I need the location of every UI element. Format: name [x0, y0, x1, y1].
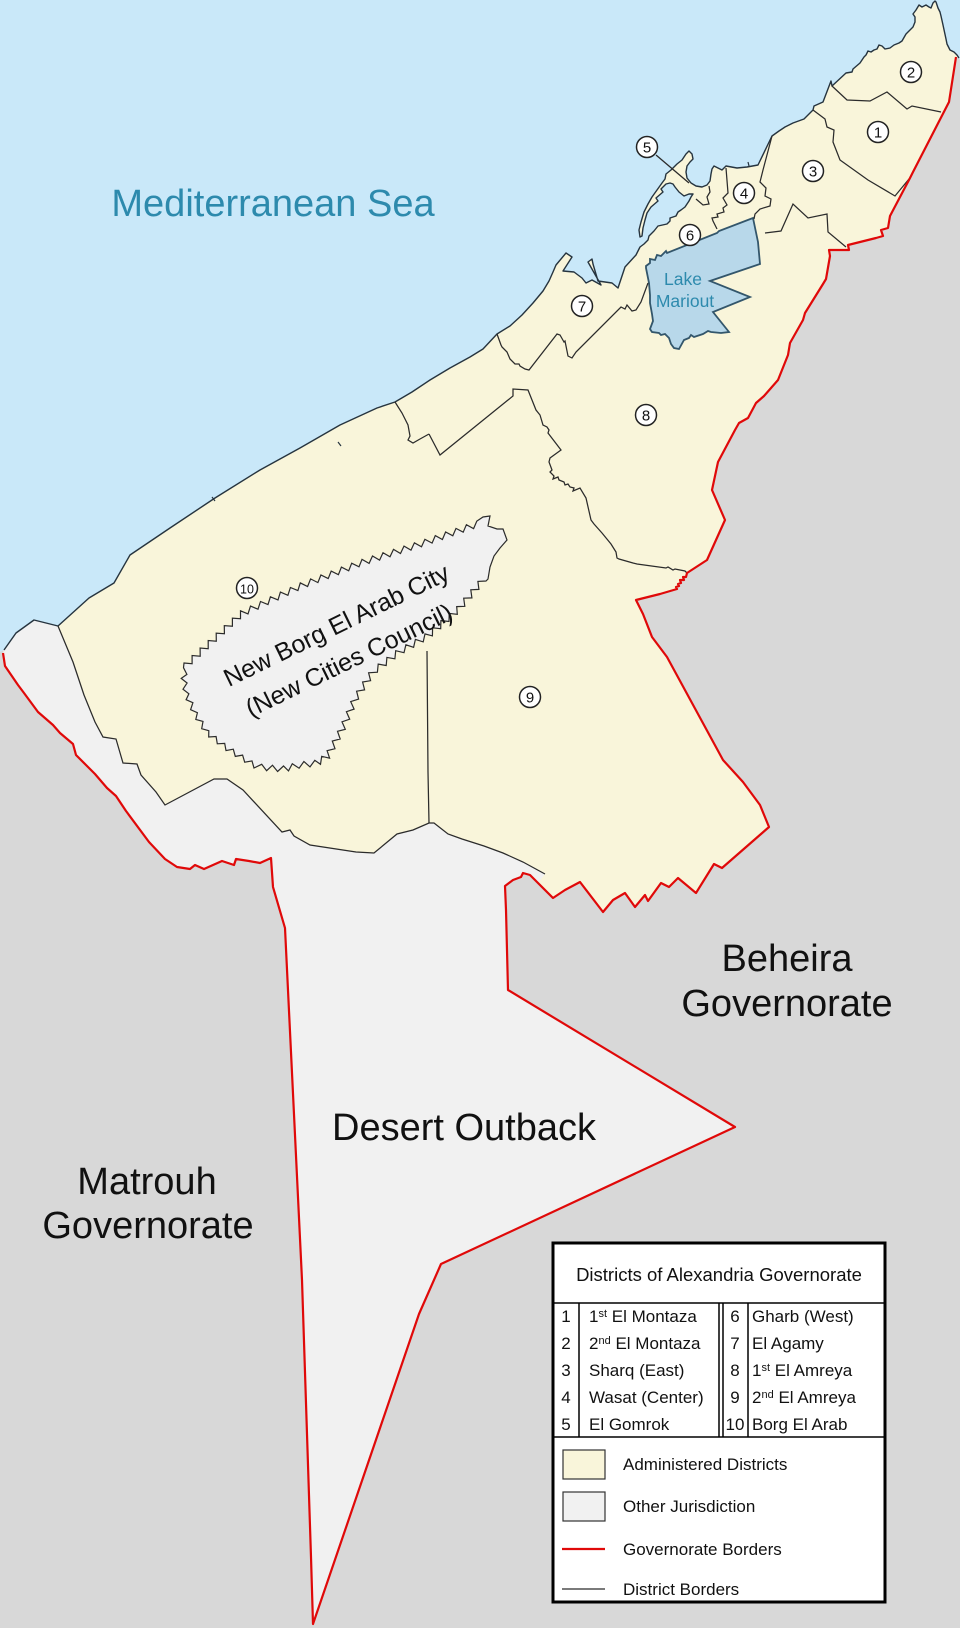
svg-text:3: 3 — [561, 1361, 570, 1380]
svg-text:2: 2 — [561, 1334, 570, 1353]
svg-text:8: 8 — [642, 407, 650, 424]
svg-text:4: 4 — [740, 185, 748, 202]
svg-text:1: 1 — [874, 124, 882, 141]
svg-text:Districts of Alexandria Govern: Districts of Alexandria Governorate — [576, 1264, 862, 1285]
svg-text:7: 7 — [730, 1334, 739, 1353]
svg-text:Other Jurisdiction: Other Jurisdiction — [623, 1497, 755, 1516]
svg-text:5: 5 — [561, 1415, 570, 1434]
svg-text:8: 8 — [730, 1361, 739, 1380]
svg-text:6: 6 — [686, 227, 694, 244]
svg-text:5: 5 — [643, 139, 651, 156]
svg-text:Matrouh: Matrouh — [77, 1161, 216, 1203]
svg-text:6: 6 — [730, 1307, 739, 1326]
svg-text:10: 10 — [726, 1415, 745, 1434]
svg-text:9: 9 — [526, 689, 534, 706]
svg-text:1: 1 — [561, 1307, 570, 1326]
svg-text:El Agamy: El Agamy — [752, 1334, 824, 1353]
svg-text:3: 3 — [809, 163, 817, 180]
svg-text:10: 10 — [240, 582, 254, 596]
svg-text:Borg El Arab: Borg El Arab — [752, 1415, 847, 1434]
svg-text:Governorate Borders: Governorate Borders — [623, 1540, 782, 1559]
svg-text:Wasat (Center): Wasat (Center) — [589, 1388, 704, 1407]
svg-text:7: 7 — [578, 298, 586, 315]
svg-text:Sharq (East): Sharq (East) — [589, 1361, 684, 1380]
svg-text:Mariout: Mariout — [656, 291, 714, 311]
svg-text:4: 4 — [561, 1388, 570, 1407]
svg-text:Governorate: Governorate — [681, 983, 892, 1025]
svg-text:Administered Districts: Administered Districts — [623, 1455, 787, 1474]
svg-text:Gharb (West): Gharb (West) — [752, 1307, 854, 1326]
svg-text:Mediterranean Sea: Mediterranean Sea — [111, 183, 435, 225]
svg-text:El Gomrok: El Gomrok — [589, 1415, 670, 1434]
svg-text:Lake: Lake — [664, 269, 702, 289]
svg-text:9: 9 — [730, 1388, 739, 1407]
svg-text:Governorate: Governorate — [42, 1205, 253, 1247]
svg-text:Beheira: Beheira — [722, 938, 854, 980]
svg-text:Desert Outback: Desert Outback — [332, 1107, 597, 1149]
svg-text:2: 2 — [907, 64, 915, 81]
svg-text:District Borders: District Borders — [623, 1580, 739, 1599]
